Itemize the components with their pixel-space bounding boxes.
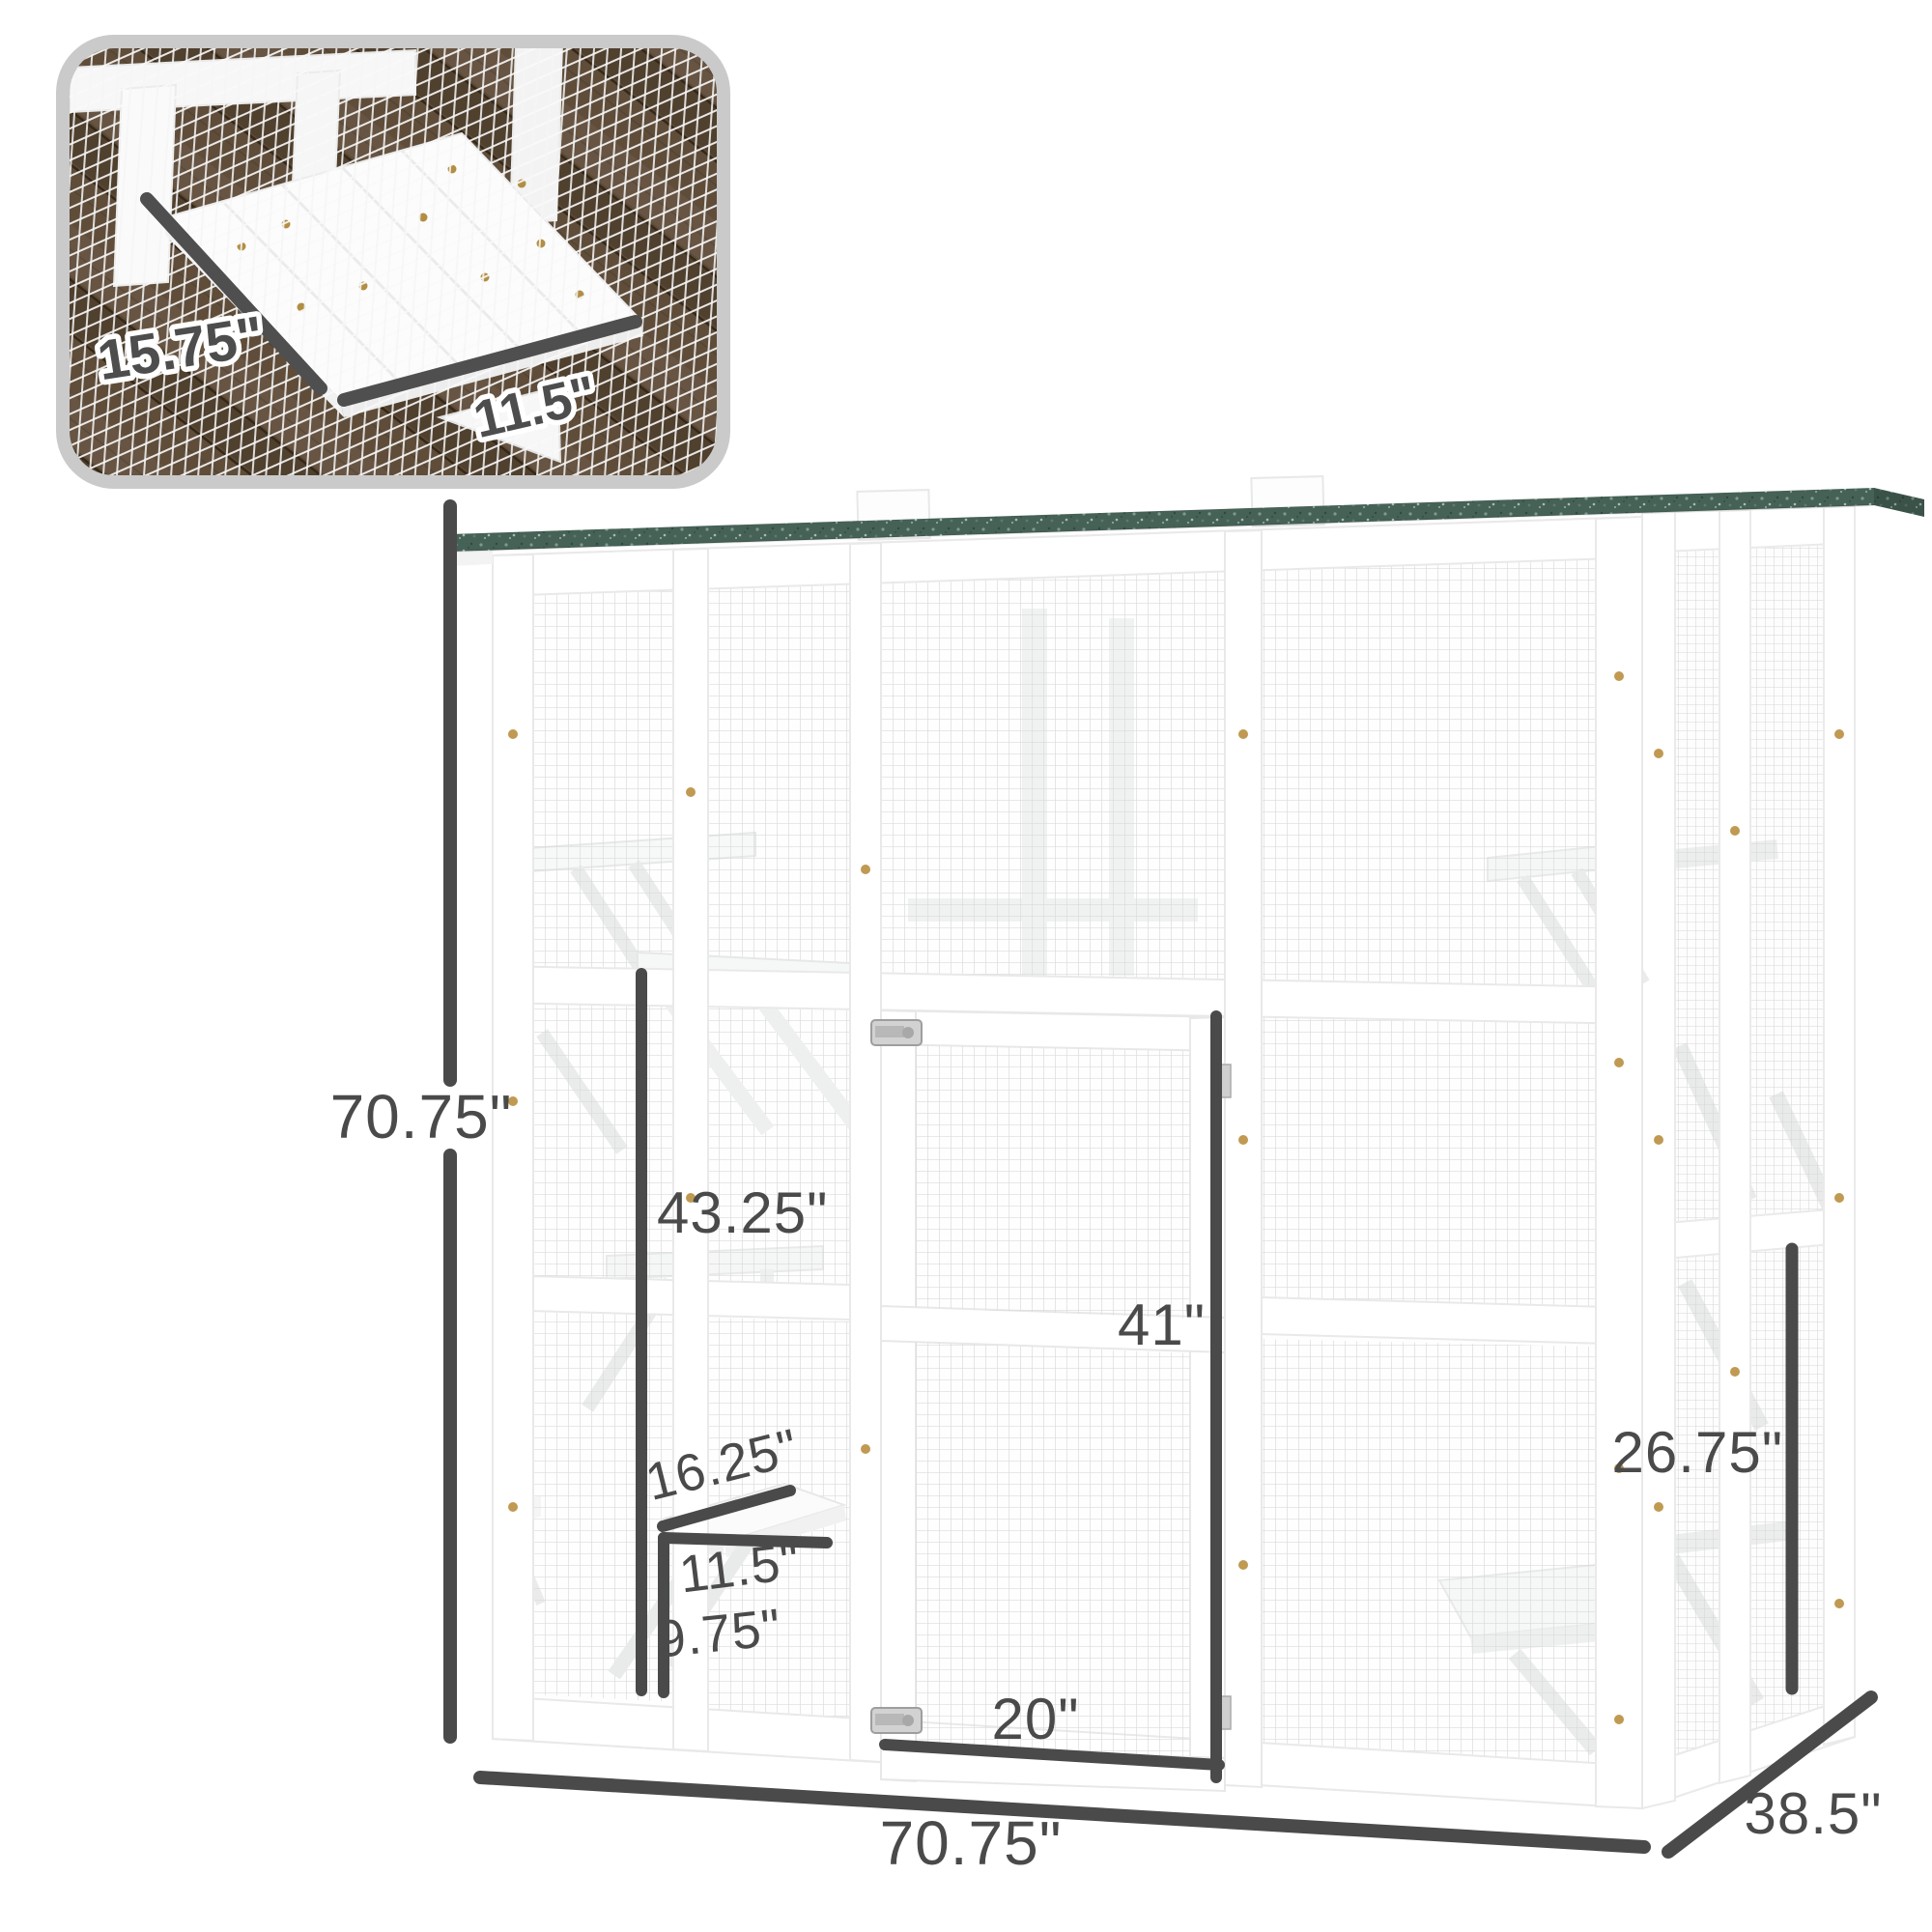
width-label: 70.75" — [880, 1808, 1063, 1878]
door-width-label: 20" — [991, 1687, 1079, 1751]
depth-label: 38.5" — [1744, 1781, 1882, 1846]
door-height-label: 41" — [1118, 1293, 1206, 1357]
side-frame — [1642, 506, 1855, 1808]
inset-photo-content — [70, 44, 717, 475]
side-platform-height-label: 26.75" — [1612, 1420, 1783, 1485]
upper-platform-height-label: 43.25" — [657, 1180, 828, 1245]
product-dimension-image: 15.75" 11.5" — [0, 0, 1932, 1932]
door-latch-top — [871, 1020, 922, 1045]
door — [871, 1010, 1231, 1791]
diagram-svg: 15.75" 11.5" — [0, 0, 1932, 1932]
door-latch-bottom — [871, 1708, 922, 1733]
side-panel — [1642, 506, 1855, 1808]
inset-photo: 15.75" 11.5" — [56, 35, 730, 489]
inset-mesh-vertical — [70, 48, 717, 475]
catio-illustration: 70.75" 43.25" 41" 26.75" 16.25" 11.5" 9.… — [330, 476, 1924, 1878]
door-mesh-upper — [916, 1045, 1190, 1319]
height-label: 70.75" — [330, 1082, 513, 1151]
